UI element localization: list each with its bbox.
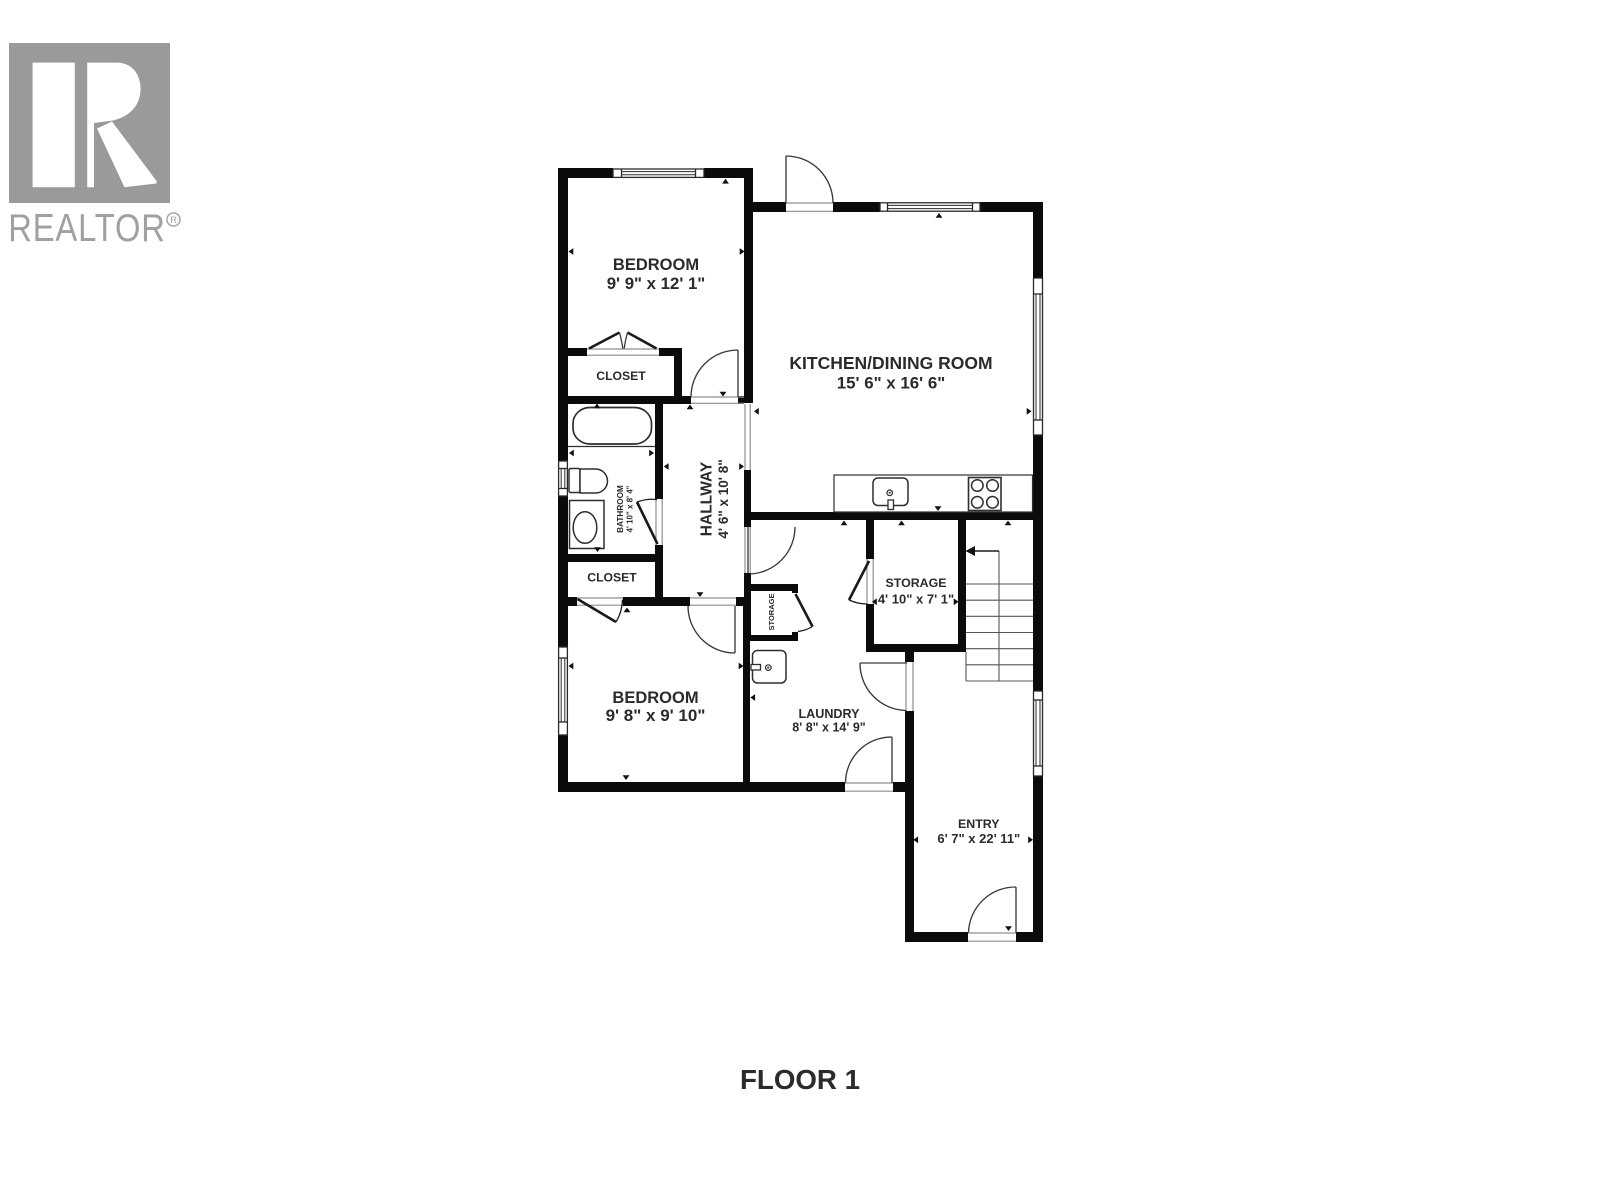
svg-text:BEDROOM: BEDROOM <box>613 256 699 274</box>
svg-text:9' 8" x 9' 10": 9' 8" x 9' 10" <box>606 706 706 725</box>
svg-text:BATHROOM: BATHROOM <box>616 485 625 533</box>
svg-text:4' 10" x 8' 4": 4' 10" x 8' 4" <box>625 485 634 532</box>
svg-text:8' 8" x 14' 9": 8' 8" x 14' 9" <box>792 721 865 735</box>
svg-text:HALLWAY: HALLWAY <box>698 461 715 536</box>
svg-text:BEDROOM: BEDROOM <box>612 689 698 707</box>
svg-text:STORAGE: STORAGE <box>885 576 946 590</box>
svg-text:9' 9" x 12' 1": 9' 9" x 12' 1" <box>607 274 706 293</box>
svg-text:CLOSET: CLOSET <box>596 369 646 383</box>
svg-text:4' 10" x 7' 1": 4' 10" x 7' 1" <box>878 592 954 607</box>
svg-text:KITCHEN/DINING ROOM: KITCHEN/DINING ROOM <box>789 353 992 373</box>
svg-text:R: R <box>170 215 177 226</box>
svg-text:CLOSET: CLOSET <box>587 571 637 585</box>
svg-text:ENTRY: ENTRY <box>958 817 1000 831</box>
svg-text:LAUNDRY: LAUNDRY <box>798 707 860 721</box>
svg-text:15' 6" x 16' 6": 15' 6" x 16' 6" <box>837 374 946 393</box>
svg-text:STORAGE: STORAGE <box>767 594 776 631</box>
svg-text:6' 7" x 22' 11": 6' 7" x 22' 11" <box>937 831 1020 846</box>
svg-text:4' 6" x 10' 8": 4' 6" x 10' 8" <box>716 459 731 538</box>
svg-text:FLOOR 1: FLOOR 1 <box>740 1064 860 1095</box>
svg-text:REALTOR: REALTOR <box>8 207 165 250</box>
